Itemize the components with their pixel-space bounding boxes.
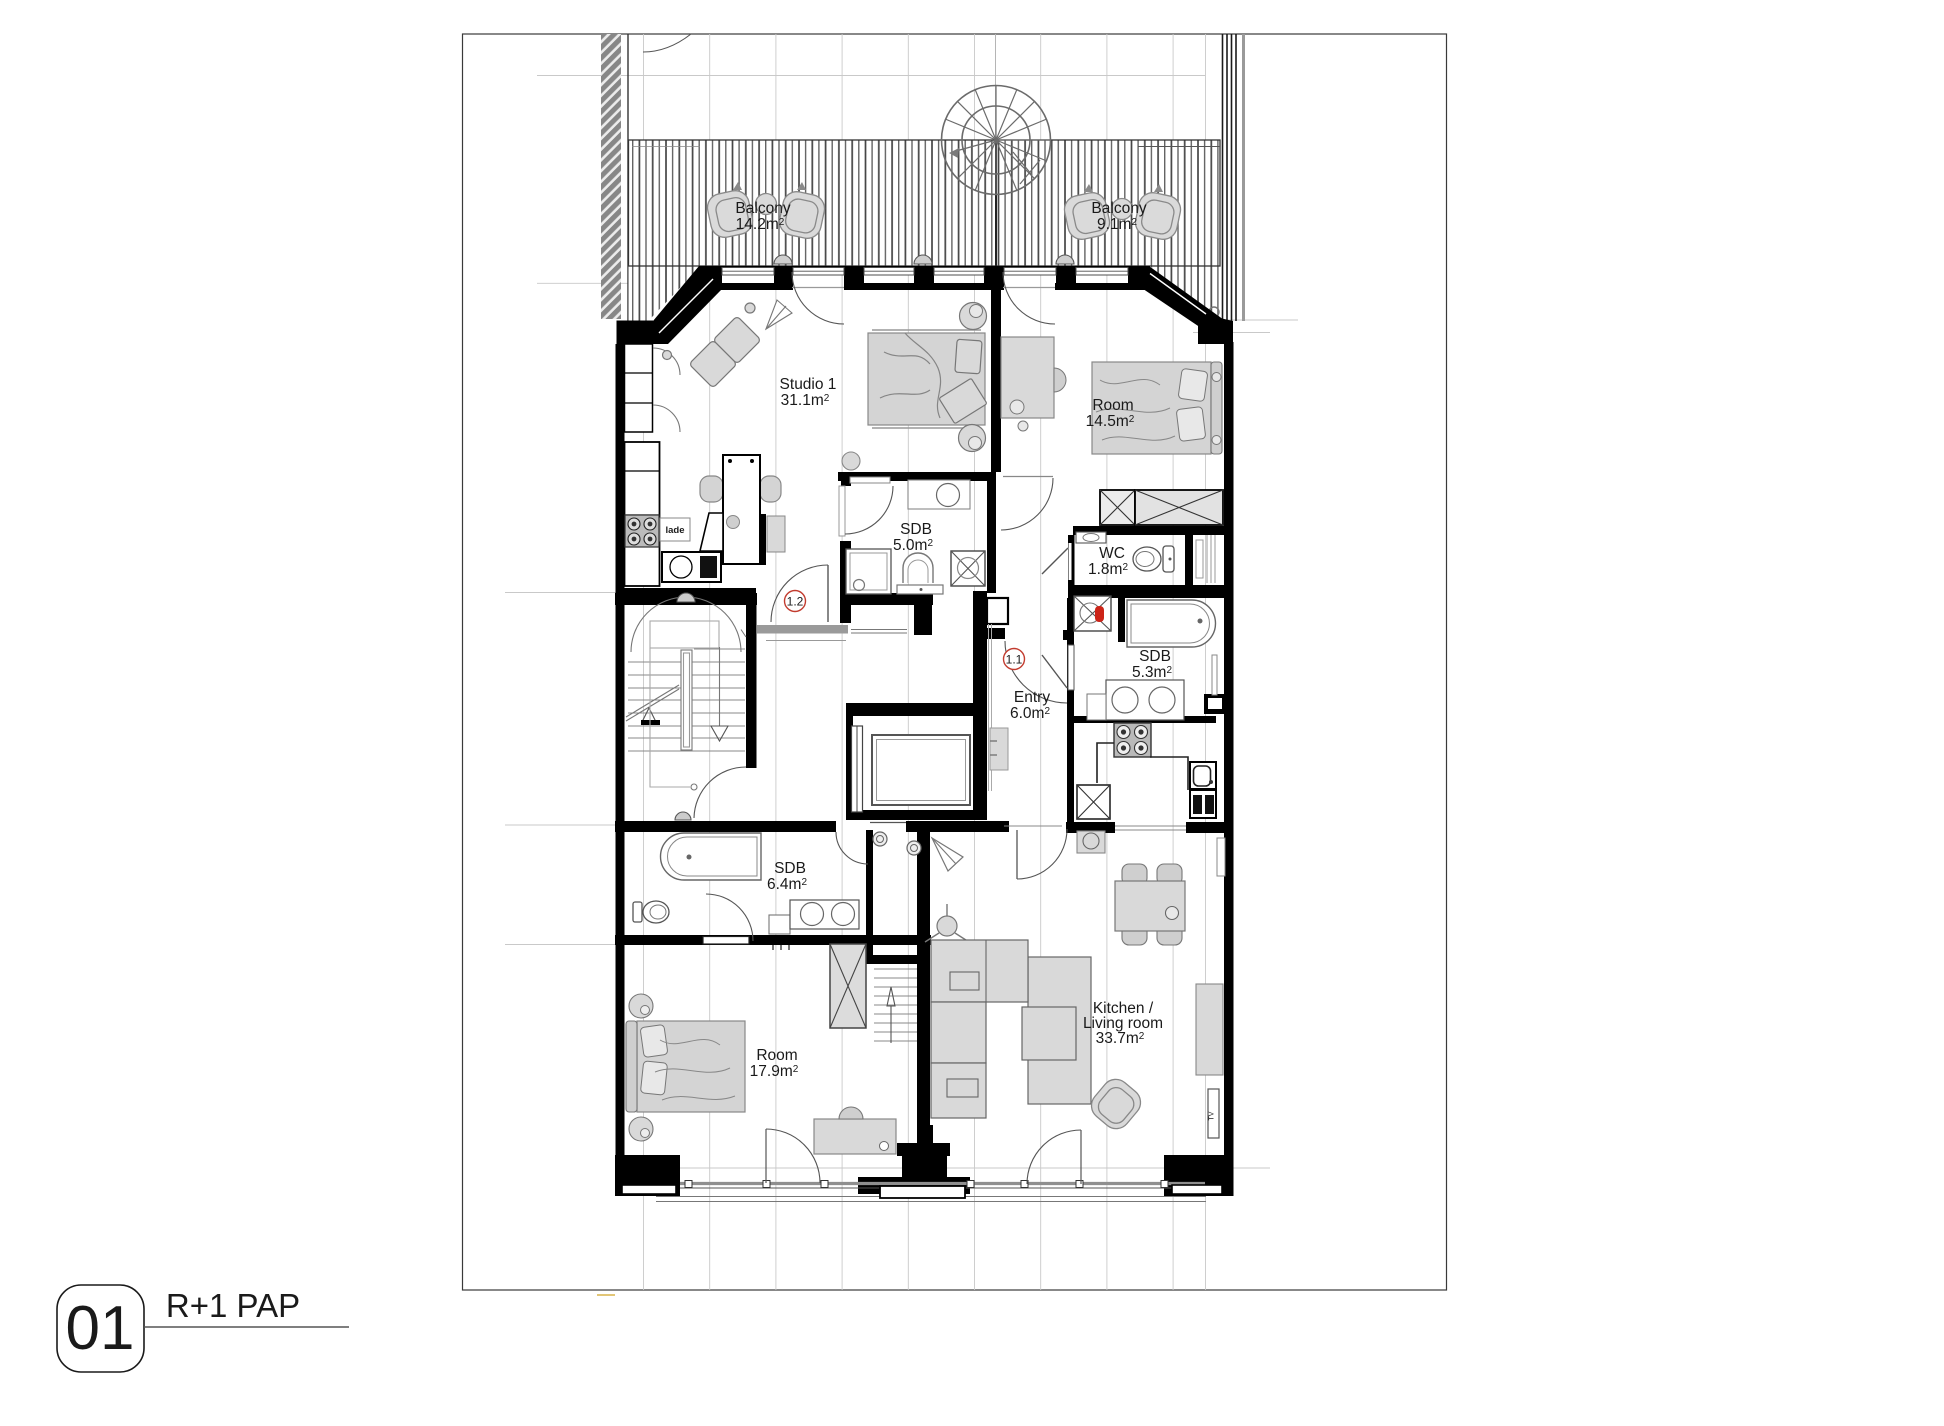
svg-text:31.1m2: 31.1m2 [781,392,830,409]
svg-text:Entry: Entry [1014,689,1050,706]
svg-text:Room: Room [756,1047,797,1064]
svg-text:6.0m2: 6.0m2 [1010,705,1050,722]
svg-text:5.0m2: 5.0m2 [893,537,933,554]
svg-text:SDB: SDB [900,521,932,538]
svg-text:Balcony: Balcony [735,200,790,217]
svg-text:R+1 PAP: R+1 PAP [166,1287,300,1324]
svg-text:33.7m2: 33.7m2 [1096,1030,1145,1047]
svg-text:Studio 1: Studio 1 [780,376,837,393]
svg-text:WC: WC [1099,545,1125,562]
svg-text:6.4m2: 6.4m2 [767,876,807,893]
svg-text:SDB: SDB [1139,648,1171,665]
svg-text:14.5m2: 14.5m2 [1086,413,1135,430]
svg-text:1.8m2: 1.8m2 [1088,561,1128,578]
svg-text:5.3m2: 5.3m2 [1132,664,1172,681]
svg-text:1.1: 1.1 [1006,653,1023,667]
svg-text:14.2m2: 14.2m2 [736,216,785,233]
svg-text:SDB: SDB [774,860,806,877]
svg-text:lade: lade [665,525,684,536]
svg-text:TV: TV [1209,1111,1216,1120]
svg-text:Balcony: Balcony [1091,200,1146,217]
svg-text:9.1m2: 9.1m2 [1097,216,1137,233]
svg-text:1.2: 1.2 [787,595,804,609]
svg-text:Room: Room [1092,397,1133,414]
svg-text:01: 01 [66,1294,135,1363]
svg-text:17.9m2: 17.9m2 [750,1063,799,1080]
